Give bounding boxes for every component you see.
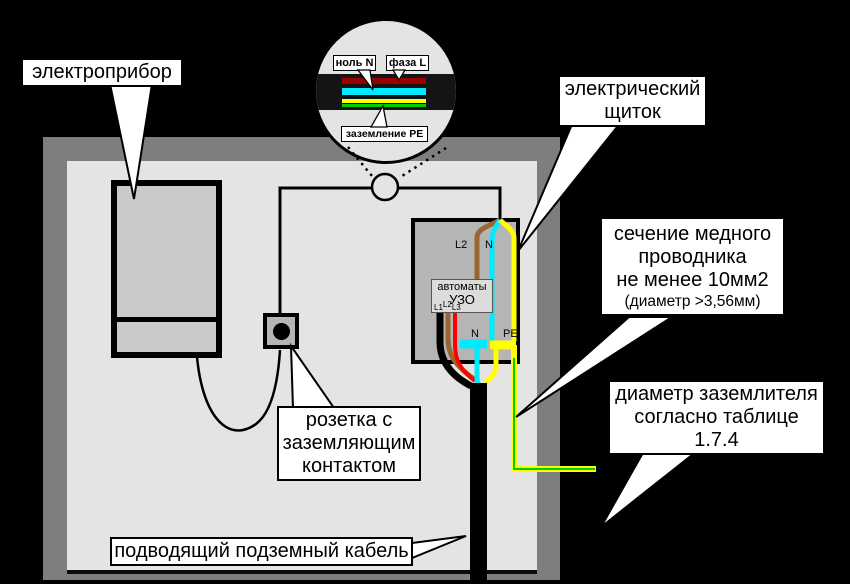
rcd-phase-labels: L1L2L3 (434, 304, 461, 312)
socket-callout: розетка с заземляющим контактом (277, 406, 421, 481)
appliance-callout-tail (110, 84, 152, 199)
phase3-label: L3 (452, 303, 461, 312)
phase1-label: L1 (434, 303, 443, 312)
panel-bottom-n-label: N (471, 329, 479, 340)
dashed-pointer-right (402, 148, 446, 176)
earth-callout: диаметр заземлителя согласно таблице 1.7… (608, 380, 825, 455)
panel-callout-line2: щиток (560, 101, 705, 124)
socket-callout-line2: заземляющим (279, 432, 419, 455)
diagram-canvas: ноль N фаза L заземление PE (0, 0, 850, 584)
cable-callout-tail (412, 536, 466, 558)
panel-callout-line1: электрический (560, 78, 705, 101)
panel-top-n-label: N (485, 240, 493, 251)
earth-callout-line3: 1.7.4 (610, 429, 823, 452)
pe-wire-lower (485, 349, 496, 382)
earth-callout-tail (601, 451, 697, 527)
appliance-callout-text: электроприбор (23, 61, 181, 84)
socket-callout-line3: контактом (279, 455, 419, 478)
panel-bottom-pe-label: PE (503, 329, 518, 340)
zoom-marker-circle (372, 174, 398, 200)
dashed-pointer-left (348, 147, 372, 176)
section-callout-line1: сечение медного (602, 223, 783, 246)
panel-callout: электрический щиток (558, 75, 707, 127)
section-callout-line4: (диаметр >3,56мм) (602, 292, 783, 311)
neutral-wire-upper (492, 220, 500, 341)
section-callout: сечение медного проводника не менее 10мм… (600, 217, 785, 316)
appliance-callout: электроприбор (21, 58, 183, 87)
neutral-label-tail (358, 70, 373, 90)
pe-wire-upper (500, 220, 514, 341)
section-callout-line3: не менее 10мм2 (602, 269, 783, 292)
earth-callout-line2: согласно таблице (610, 406, 823, 429)
panel-top-l2-label: L2 (455, 240, 467, 251)
ground-label-tail (371, 106, 387, 127)
socket-callout-tail (291, 346, 334, 408)
appliance-cord (197, 350, 280, 430)
rcd-breaker-box: автоматы УЗО L1L2L3 (431, 279, 493, 313)
section-callout-line2: проводника (602, 246, 783, 269)
socket-callout-line1: розетка с (279, 409, 419, 432)
phase-label-tail (393, 70, 405, 80)
neutral-wire-lower (477, 348, 481, 387)
cable-callout: подводящий подземный кабель (110, 537, 413, 566)
phase2-label: L2 (443, 300, 452, 309)
cable-callout-text: подводящий подземный кабель (112, 540, 411, 563)
earth-callout-line1: диаметр заземлителя (610, 383, 823, 406)
